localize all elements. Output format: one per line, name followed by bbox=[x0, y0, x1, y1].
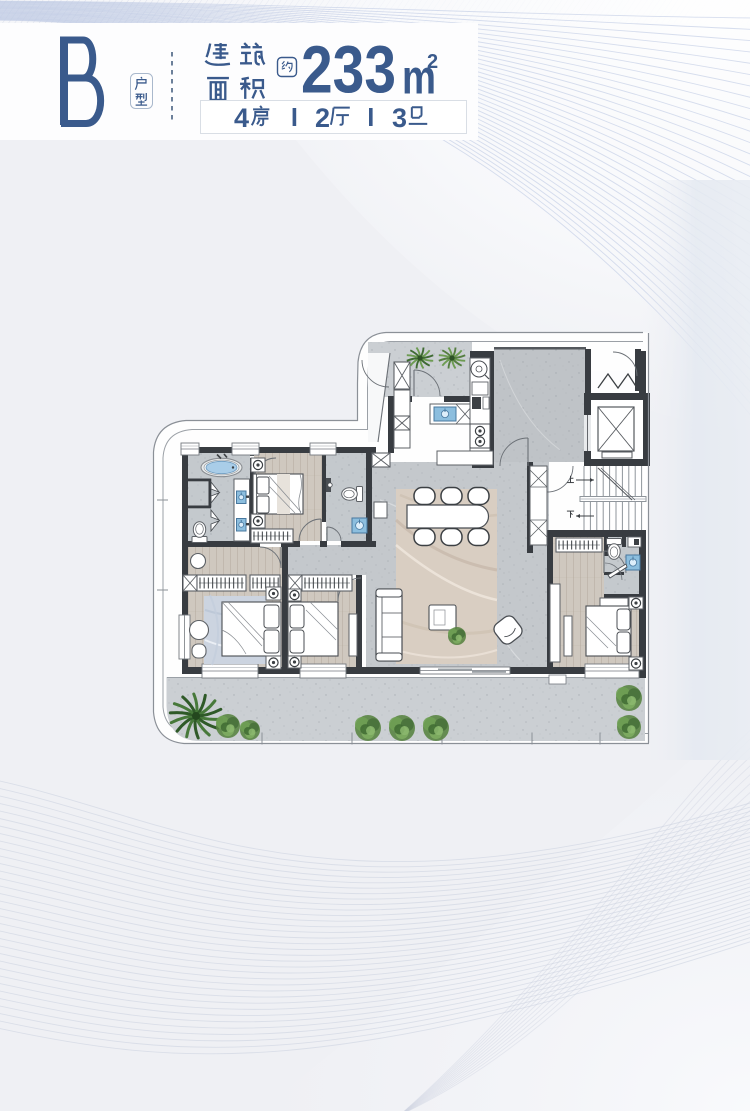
svg-text:233: 233 bbox=[301, 33, 396, 108]
svg-text:3: 3 bbox=[392, 103, 407, 133]
svg-text:2: 2 bbox=[427, 51, 438, 73]
svg-text:4: 4 bbox=[234, 103, 249, 133]
svg-text:2: 2 bbox=[315, 103, 330, 133]
